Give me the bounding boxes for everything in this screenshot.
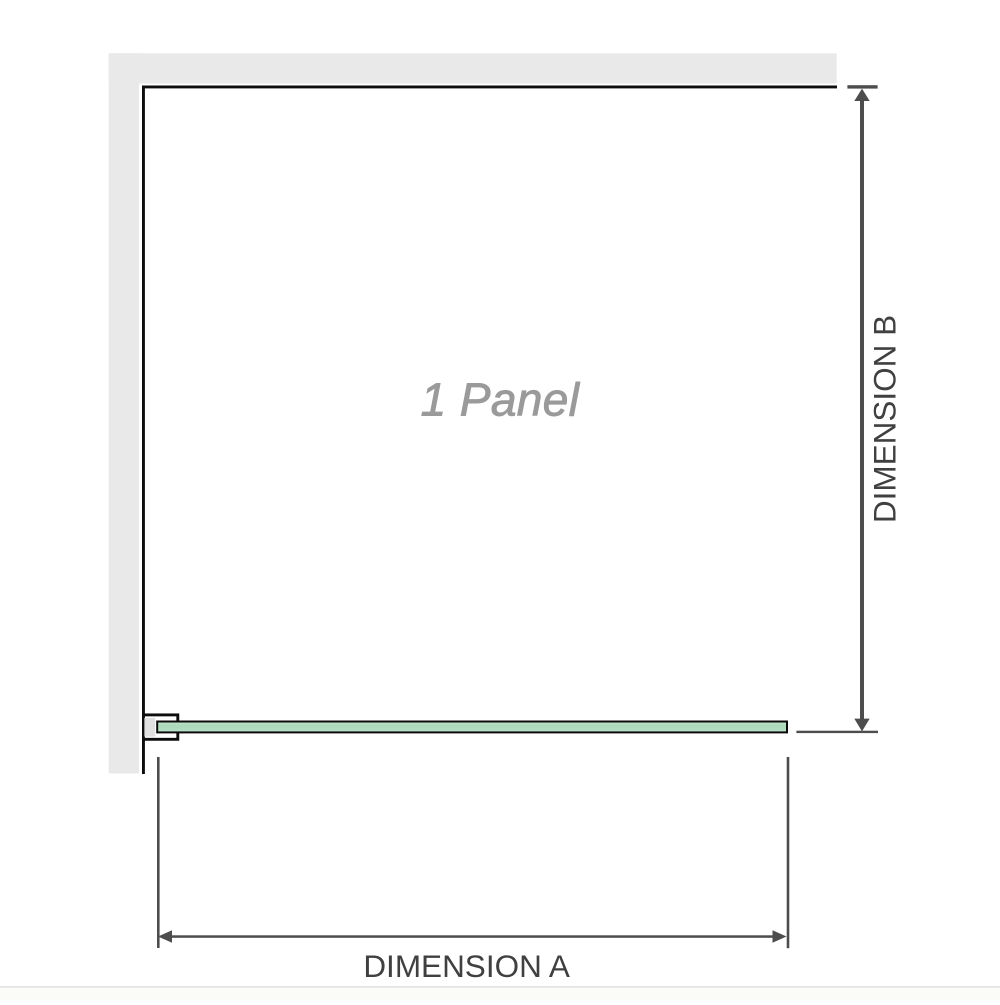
svg-text:1 Panel: 1 Panel: [421, 374, 581, 426]
svg-text:DIMENSION A: DIMENSION A: [363, 948, 570, 984]
svg-text:DIMENSION B: DIMENSION B: [867, 315, 903, 523]
